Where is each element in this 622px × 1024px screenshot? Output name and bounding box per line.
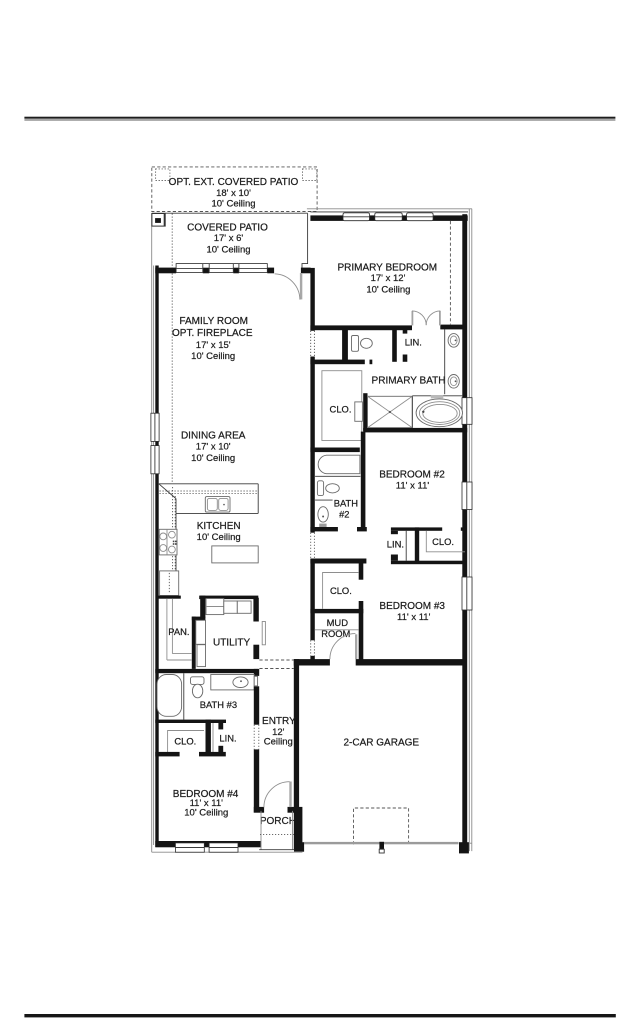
svg-text:OPT. EXT. COVERED PATIO: OPT. EXT. COVERED PATIO bbox=[169, 177, 299, 188]
svg-text:LIN.: LIN. bbox=[387, 538, 404, 549]
svg-text:PORCH: PORCH bbox=[260, 816, 296, 827]
svg-text:10' Ceiling: 10' Ceiling bbox=[191, 453, 235, 464]
svg-text:CLO.: CLO. bbox=[174, 735, 196, 746]
svg-text:PAN.: PAN. bbox=[168, 626, 189, 637]
svg-text:ROOM: ROOM bbox=[321, 628, 350, 639]
svg-text:MUD: MUD bbox=[327, 617, 349, 628]
svg-text:FAMILY ROOM: FAMILY ROOM bbox=[179, 316, 248, 327]
svg-text:CLO.: CLO. bbox=[330, 585, 352, 596]
svg-text:DINING AREA: DINING AREA bbox=[181, 431, 246, 442]
svg-text:Ceiling: Ceiling bbox=[264, 737, 293, 748]
svg-text:11' x 11': 11' x 11' bbox=[397, 612, 431, 623]
svg-text:10' Ceiling: 10' Ceiling bbox=[206, 245, 250, 256]
svg-text:17' x 15': 17' x 15' bbox=[196, 340, 231, 351]
svg-text:BEDROOM #3: BEDROOM #3 bbox=[379, 601, 445, 612]
svg-text:CLO.: CLO. bbox=[432, 536, 454, 547]
svg-text:CLO.: CLO. bbox=[330, 403, 352, 414]
svg-text:11' x 11': 11' x 11' bbox=[396, 481, 430, 492]
svg-text:18' x 10': 18' x 10' bbox=[216, 188, 251, 199]
svg-text:PRIMARY BEDROOM: PRIMARY BEDROOM bbox=[337, 262, 437, 273]
svg-text:10' Ceiling: 10' Ceiling bbox=[197, 532, 241, 543]
svg-text:OPT. FIREPLACE: OPT. FIREPLACE bbox=[172, 328, 253, 339]
svg-text:LIN.: LIN. bbox=[219, 733, 236, 744]
svg-text:10' Ceiling: 10' Ceiling bbox=[366, 285, 410, 296]
svg-text:PRIMARY BATH: PRIMARY BATH bbox=[372, 376, 446, 387]
svg-text:UTILITY: UTILITY bbox=[213, 638, 251, 649]
svg-text:LIN.: LIN. bbox=[405, 337, 422, 348]
svg-text:17' x 6': 17' x 6' bbox=[214, 233, 244, 244]
svg-text:#2: #2 bbox=[339, 509, 349, 520]
svg-text:COVERED PATIO: COVERED PATIO bbox=[187, 222, 268, 233]
svg-text:BATH: BATH bbox=[334, 498, 358, 509]
svg-text:10' Ceiling: 10' Ceiling bbox=[211, 199, 255, 210]
svg-text:BEDROOM #2: BEDROOM #2 bbox=[379, 470, 445, 481]
svg-text:ENTRY: ENTRY bbox=[262, 716, 296, 727]
svg-text:17' x 12': 17' x 12' bbox=[371, 273, 406, 284]
svg-text:17' x 10': 17' x 10' bbox=[196, 442, 231, 453]
svg-text:2-CAR GARAGE: 2-CAR GARAGE bbox=[344, 737, 420, 748]
svg-text:10' Ceiling: 10' Ceiling bbox=[191, 351, 235, 362]
svg-text:BATH #3: BATH #3 bbox=[200, 699, 237, 710]
svg-text:10' Ceiling: 10' Ceiling bbox=[184, 808, 228, 819]
svg-text:KITCHEN: KITCHEN bbox=[197, 521, 241, 532]
